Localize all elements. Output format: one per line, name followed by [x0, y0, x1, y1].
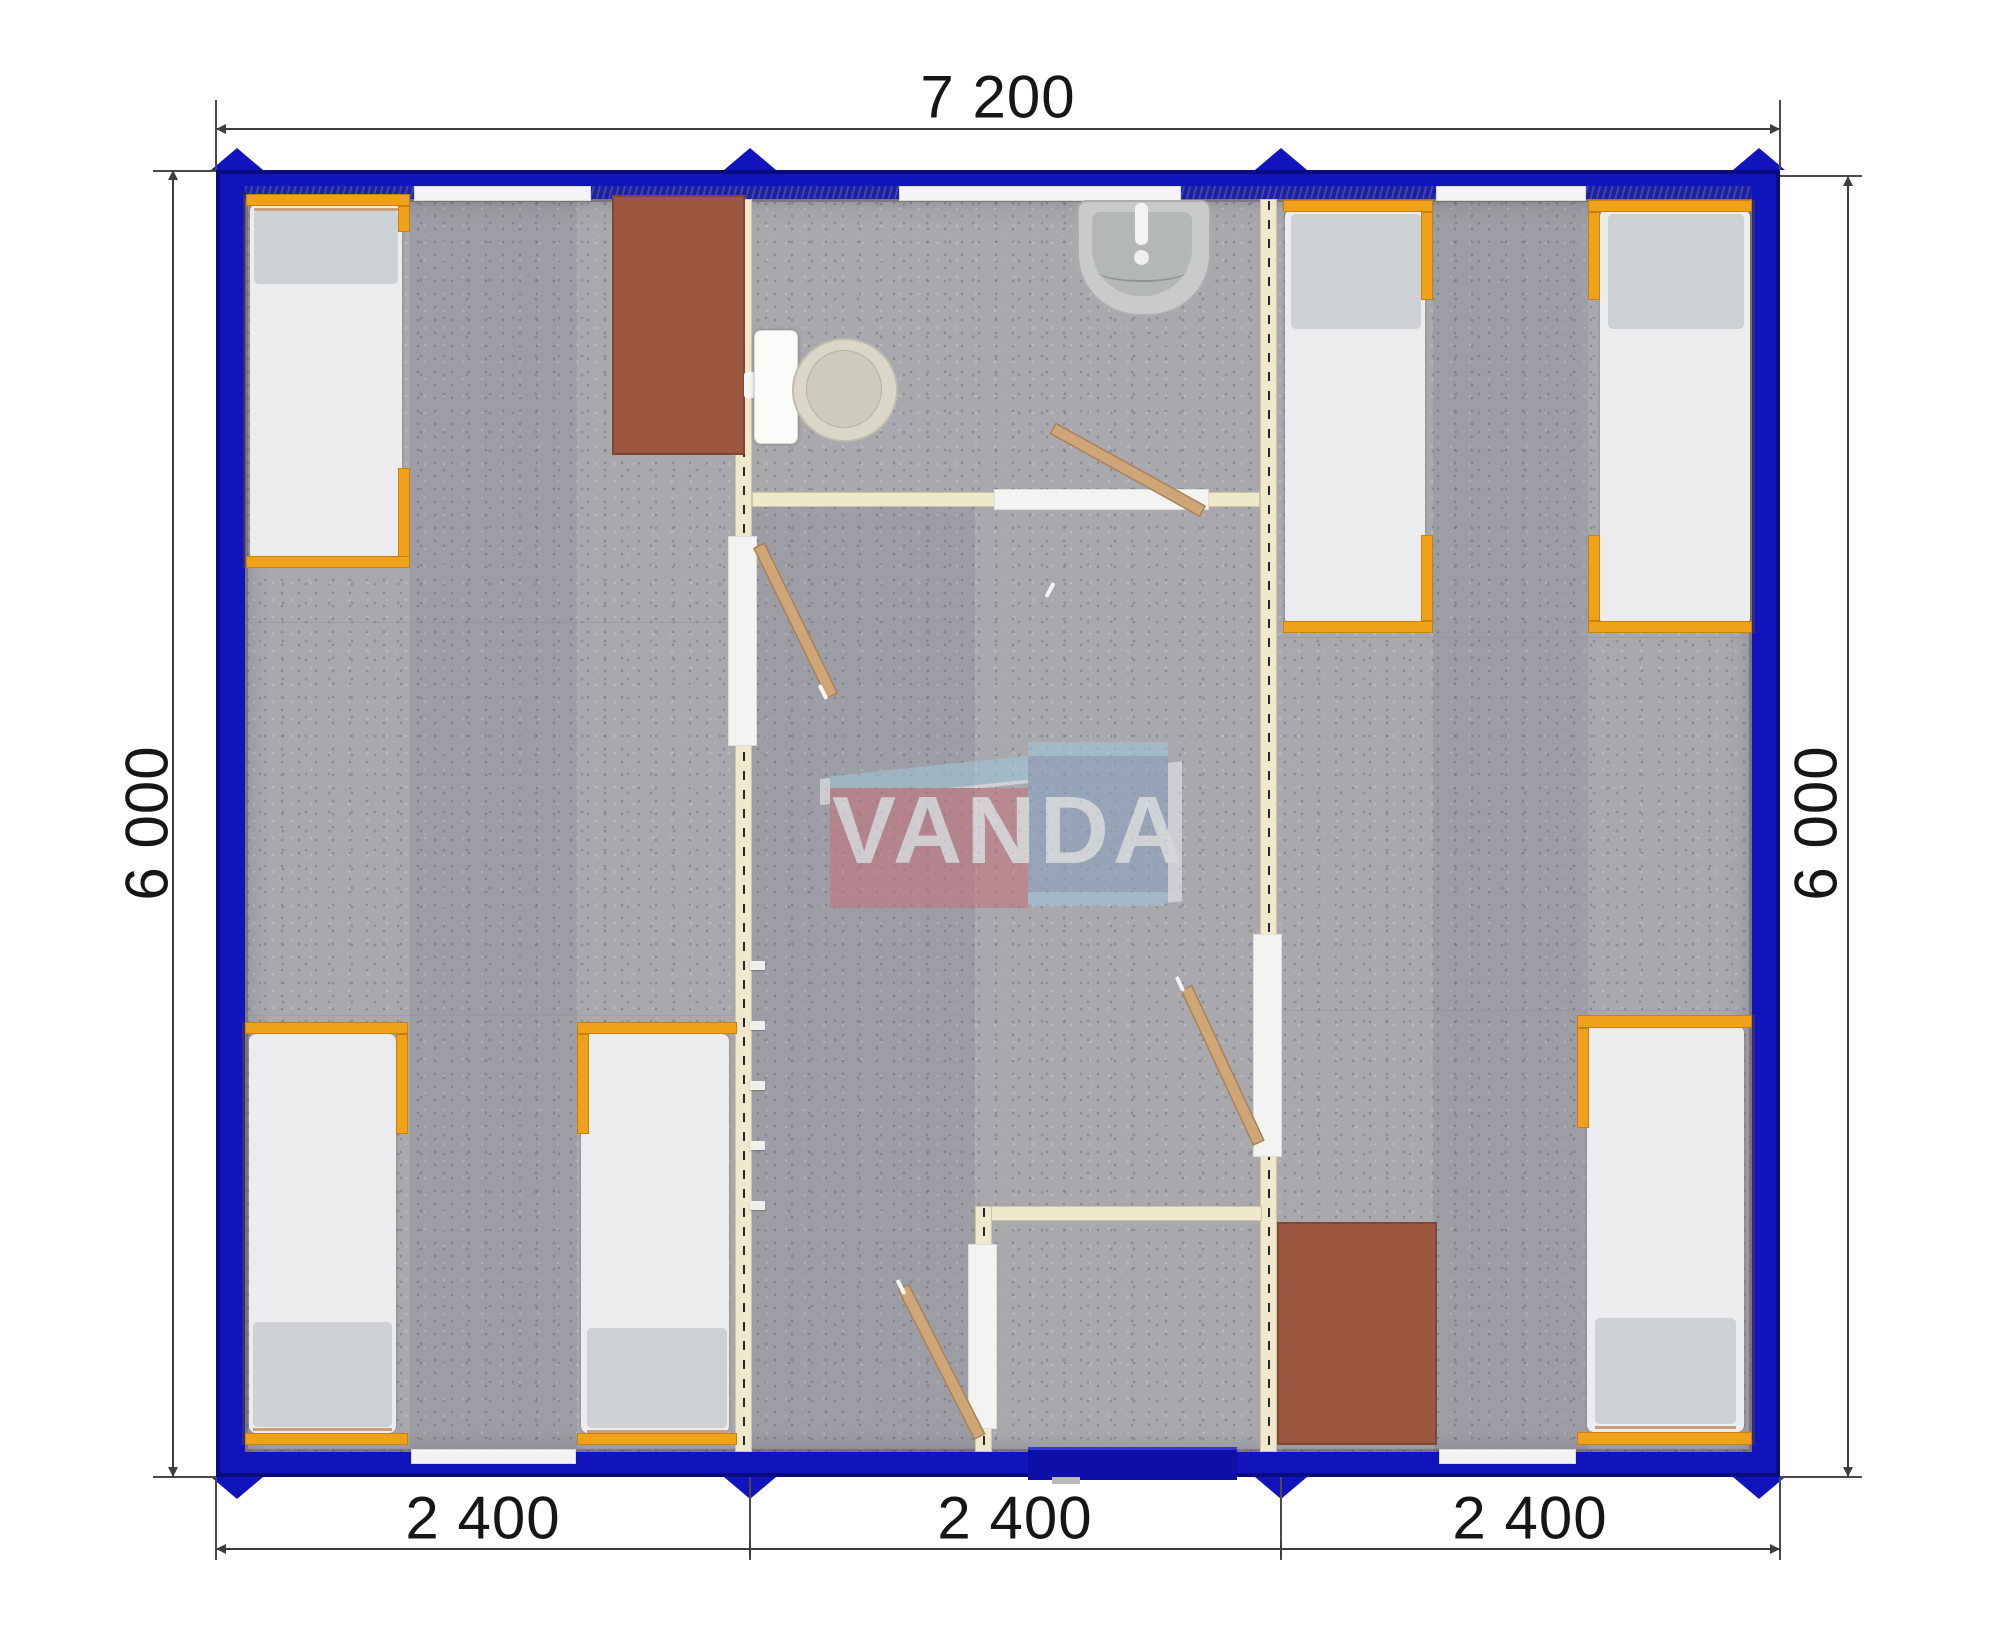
bed-frame-bar	[577, 1034, 589, 1134]
carpet-walkway	[1433, 199, 1588, 1452]
dimension-arrow	[216, 1544, 226, 1554]
bed	[577, 1022, 737, 1445]
bed-frame-bar	[1577, 1015, 1752, 1028]
logo-blue-box-bottom	[1028, 892, 1178, 906]
dimension-arrow	[1843, 176, 1853, 186]
dimension-tick	[749, 1541, 751, 1557]
vanda-logo-watermark: VANDA	[812, 742, 1190, 908]
bed-pillow	[253, 1322, 392, 1427]
window	[412, 1450, 575, 1463]
module-joint-marker	[1733, 1477, 1785, 1499]
bed-frame-bar	[245, 1433, 408, 1445]
dimension-label-bottom-2: 2 400	[937, 1484, 1092, 1553]
bed-frame-bar	[398, 468, 410, 568]
bed-frame-bar	[246, 556, 410, 568]
bed	[1588, 200, 1752, 633]
bed-headboard-line	[1595, 1426, 1736, 1429]
bed	[1577, 1015, 1752, 1445]
coat-hook	[750, 1021, 765, 1030]
dimension-label-left: 6 000	[113, 745, 182, 900]
bed-frame-bar	[246, 194, 410, 206]
bed-pillow	[254, 210, 398, 284]
bed-frame-bar	[1588, 621, 1752, 633]
window	[415, 187, 590, 200]
dimension-label-top: 7 200	[920, 63, 1075, 132]
door-jamb	[1254, 935, 1281, 1156]
dimension-arrow	[216, 124, 226, 134]
interior-wall-right	[1260, 199, 1277, 1452]
extension-line	[1779, 100, 1781, 170]
carpet-seam	[1277, 1010, 1752, 1011]
dimension-arrow	[1770, 1544, 1780, 1554]
bed	[1283, 200, 1433, 633]
bed-frame-bar	[398, 206, 410, 232]
bed-frame-bar	[1577, 1432, 1752, 1445]
carpet-walkway	[410, 199, 577, 1452]
coat-hook	[750, 1081, 765, 1090]
sink-front-curve	[1097, 260, 1187, 282]
module-joint-marker	[724, 148, 776, 170]
module-joint-marker	[1255, 148, 1307, 170]
logo-text: VANDA	[832, 776, 1186, 886]
dimension-arrow	[1843, 1467, 1853, 1477]
bed-frame-bar	[577, 1433, 737, 1445]
door-jamb	[969, 1245, 996, 1428]
bed-headboard-line	[253, 1428, 392, 1431]
carpet-walkway	[752, 507, 975, 1452]
module-joint-marker	[1733, 148, 1785, 170]
toilet	[740, 326, 900, 446]
toilet-bowl-rim	[806, 350, 882, 428]
bed-frame-bar	[1283, 200, 1433, 212]
bed-frame-bar	[1588, 212, 1600, 300]
bed-frame-bar	[1577, 1028, 1589, 1128]
dimension-label-right: 6 000	[1782, 745, 1851, 900]
extension-line	[153, 1476, 216, 1478]
bed-headboard-line	[254, 208, 398, 211]
extension-line	[215, 100, 217, 170]
bed-frame-bar	[1421, 535, 1433, 621]
bed-frame-bar	[1588, 535, 1600, 621]
bed-frame-bar	[1421, 212, 1433, 300]
floor-plan-canvas: VANDA 7 200 6 000 6 000 2 400 2 400 2 40…	[0, 0, 2000, 1648]
dimension-arrow	[1770, 124, 1780, 134]
entry-door	[1028, 1447, 1237, 1480]
sink	[1077, 200, 1207, 314]
bed-frame-bar	[245, 1022, 408, 1034]
bed-pillow	[1595, 1318, 1736, 1424]
window	[1440, 1450, 1575, 1463]
window	[900, 187, 1180, 200]
dimension-tick	[1280, 1541, 1282, 1557]
bed-frame-bar	[1283, 621, 1433, 633]
carpet-seam	[245, 622, 735, 623]
extension-line	[153, 170, 216, 172]
bed-pillow	[1608, 214, 1744, 329]
dimension-arrow	[168, 1467, 178, 1477]
sink-faucet	[1135, 203, 1148, 245]
bed-pillow	[1291, 214, 1421, 329]
door-jamb	[729, 537, 756, 745]
coat-hook	[750, 961, 765, 970]
coat-hook	[750, 1201, 765, 1210]
module-joint-marker	[211, 148, 263, 170]
bed-frame-bar	[1588, 200, 1752, 212]
vestibule-wall-top	[983, 1206, 1262, 1221]
bed-frame-bar	[396, 1034, 408, 1134]
dimension-arrow	[168, 170, 178, 180]
module-joint-marker	[211, 1477, 263, 1499]
bed-frame-bar	[577, 1022, 737, 1034]
dimension-label-bottom-3: 2 400	[1452, 1484, 1607, 1553]
desk	[612, 195, 745, 455]
bed-pillow	[587, 1328, 727, 1428]
bed	[246, 194, 410, 568]
carpet-seam	[1277, 637, 1752, 638]
desk	[1277, 1222, 1437, 1445]
coat-hook	[750, 1141, 765, 1150]
carpet-seam	[245, 1015, 735, 1016]
dimension-label-bottom-1: 2 400	[405, 1484, 560, 1553]
window	[1437, 187, 1585, 200]
bed	[245, 1022, 408, 1445]
